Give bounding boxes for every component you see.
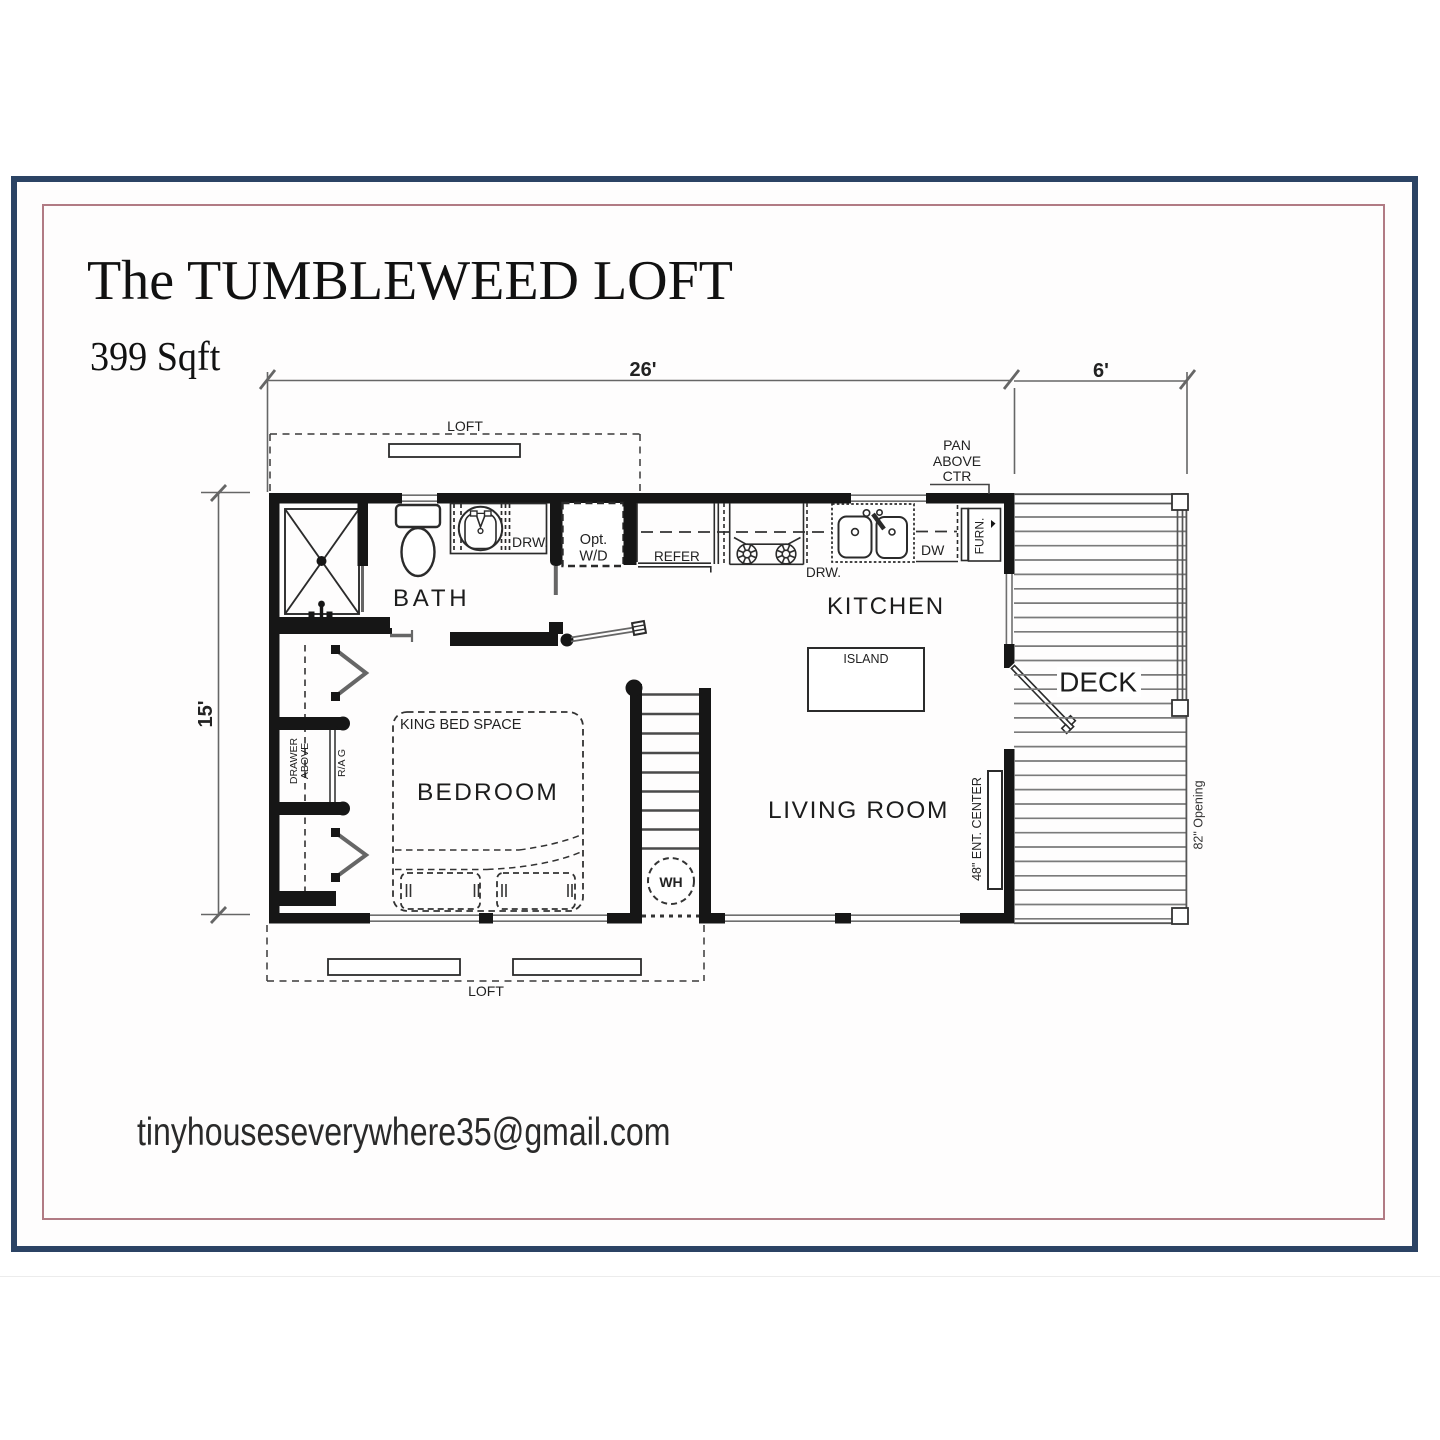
svg-text:BEDROOM: BEDROOM [417, 779, 559, 806]
svg-text:KING BED SPACE: KING BED SPACE [400, 717, 522, 733]
svg-text:LIVING ROOM: LIVING ROOM [768, 797, 949, 824]
svg-text:48" ENT. CENTER: 48" ENT. CENTER [970, 777, 984, 881]
svg-text:ABOVE: ABOVE [933, 453, 981, 469]
svg-text:DRW.: DRW. [806, 565, 841, 580]
svg-text:6': 6' [1093, 360, 1109, 382]
svg-text:WH: WH [659, 874, 682, 890]
svg-text:Opt.: Opt. [580, 532, 607, 548]
svg-text:ISLAND: ISLAND [843, 652, 888, 666]
svg-text:PAN: PAN [943, 437, 971, 453]
svg-text:ABOVE: ABOVE [299, 743, 311, 779]
svg-text:REFER: REFER [654, 549, 700, 564]
svg-text:CTR: CTR [943, 468, 972, 484]
svg-text:82" Opening: 82" Opening [1192, 780, 1206, 849]
svg-text:DW: DW [921, 542, 945, 558]
svg-text:FURN.: FURN. [973, 518, 987, 555]
svg-text:DRW.: DRW. [512, 534, 548, 550]
svg-text:R/A G: R/A G [336, 749, 348, 777]
svg-text:W/D: W/D [579, 549, 607, 565]
svg-text:BATH: BATH [393, 585, 470, 612]
svg-text:26': 26' [629, 359, 656, 381]
svg-text:DECK: DECK [1059, 667, 1137, 698]
svg-text:KITCHEN: KITCHEN [827, 593, 945, 620]
svg-text:LOFT: LOFT [447, 418, 483, 434]
svg-text:LOFT: LOFT [468, 983, 504, 999]
svg-text:15': 15' [195, 700, 217, 727]
